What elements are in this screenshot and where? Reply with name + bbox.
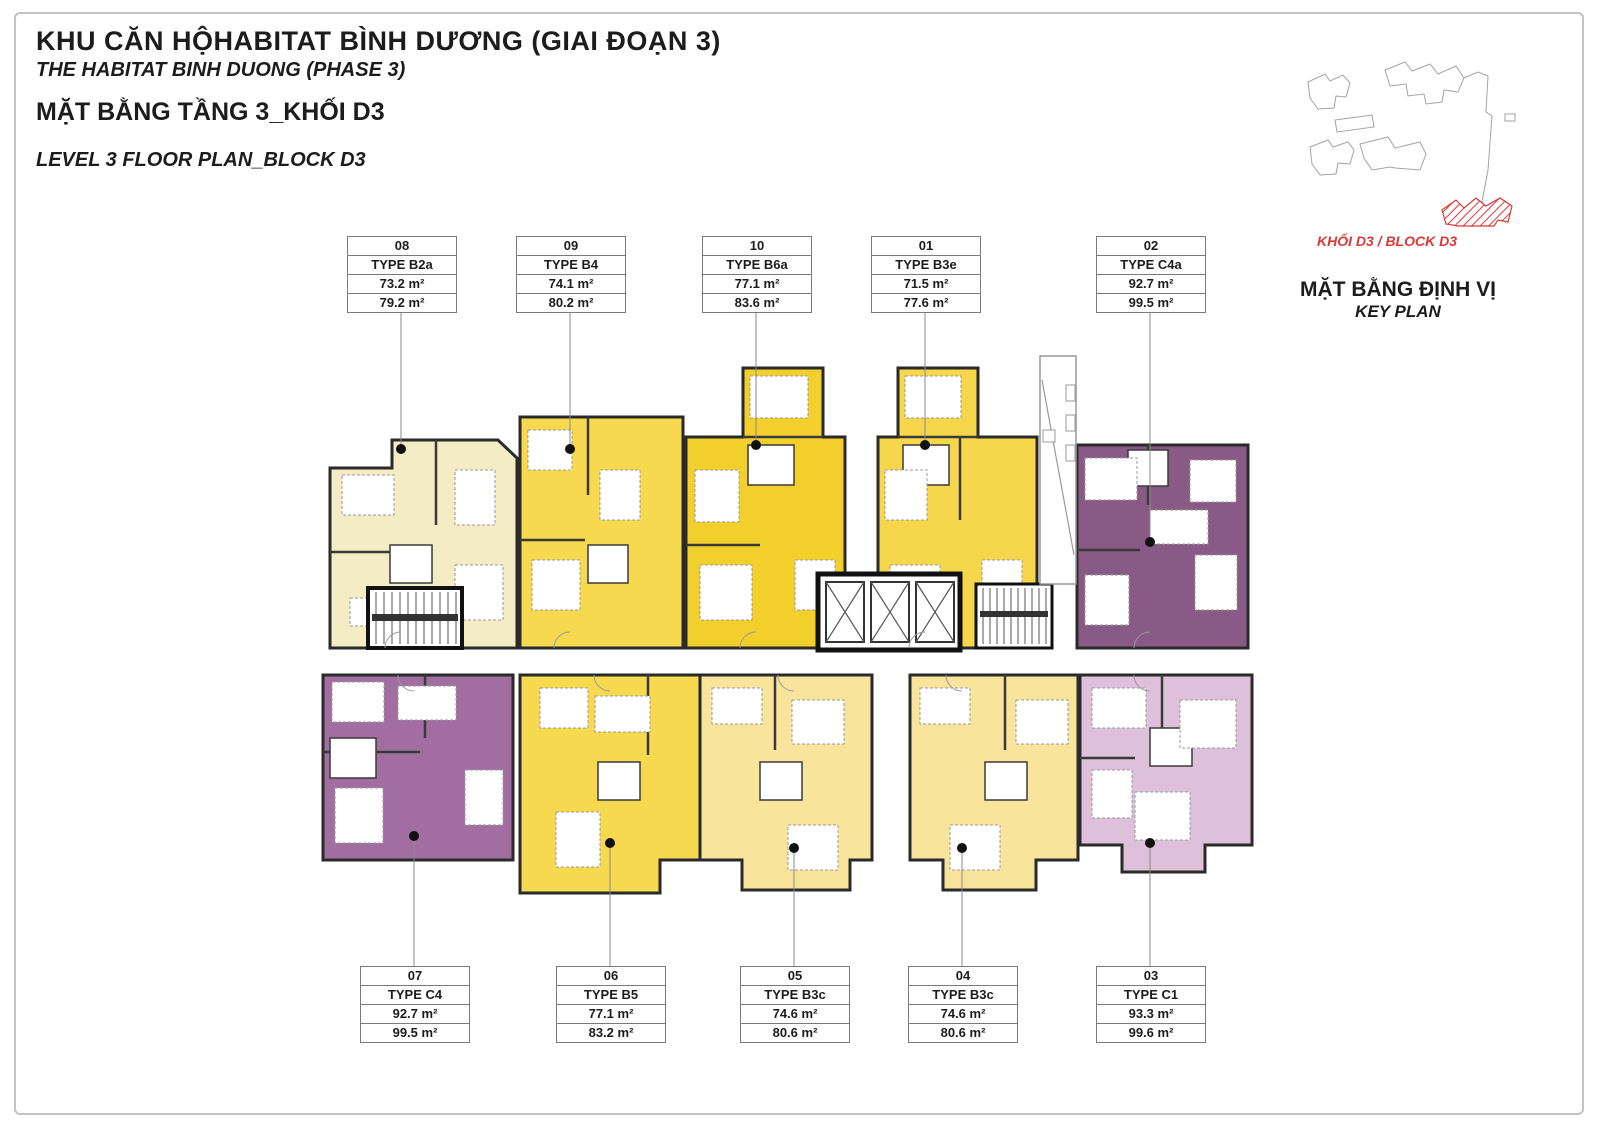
unit-area-1: 77.1 m²: [557, 1005, 665, 1024]
elevator-cell: [916, 582, 954, 642]
unit-area-1: 77.1 m²: [703, 275, 811, 294]
unit-type: TYPE C1: [1097, 986, 1205, 1005]
unit-area-2: 80.6 m²: [909, 1024, 1017, 1042]
unit-type: TYPE B6a: [703, 256, 811, 275]
elevator-cell: [826, 582, 864, 642]
unit-type: TYPE B4: [517, 256, 625, 275]
unit-number: 02: [1097, 237, 1205, 256]
unit-number: 03: [1097, 967, 1205, 986]
unit-area-1: 92.7 m²: [1097, 275, 1205, 294]
unit-number: 10: [703, 237, 811, 256]
unit-area-2: 99.5 m²: [361, 1024, 469, 1042]
unit-area-2: 83.2 m²: [557, 1024, 665, 1042]
unit-label-box-08: 08 TYPE B2a 73.2 m² 79.2 m²: [347, 236, 457, 313]
unit-label-box-04: 04 TYPE B3c 74.6 m² 80.6 m²: [908, 966, 1018, 1043]
building-outline: [1335, 115, 1374, 132]
unit-label-box-07: 07 TYPE C4 92.7 m² 99.5 m²: [360, 966, 470, 1043]
unit-area-2: 83.6 m²: [703, 294, 811, 312]
building-outline: [1505, 114, 1515, 121]
block-d3-label: KHỐI D3 / BLOCK D3: [1282, 233, 1492, 249]
unit-number: 07: [361, 967, 469, 986]
unit-area-2: 80.6 m²: [741, 1024, 849, 1042]
unit-label-box-05: 05 TYPE B3c 74.6 m² 80.6 m²: [740, 966, 850, 1043]
stairs-left: [368, 588, 462, 648]
service-ramp: [1040, 356, 1076, 584]
unit-area-2: 80.2 m²: [517, 294, 625, 312]
unit-type: TYPE B5: [557, 986, 665, 1005]
unit-type: TYPE B3c: [909, 986, 1017, 1005]
unit-area-1: 93.3 m²: [1097, 1005, 1205, 1024]
unit-number: 08: [348, 237, 456, 256]
unit-type: TYPE B3c: [741, 986, 849, 1005]
unit-area-1: 73.2 m²: [348, 275, 456, 294]
building-outline: [1385, 62, 1464, 104]
unit-number: 06: [557, 967, 665, 986]
unit-area-1: 71.5 m²: [872, 275, 980, 294]
unit-type: TYPE B3e: [872, 256, 980, 275]
unit-number: 05: [741, 967, 849, 986]
key-plan-sketch: [1280, 52, 1550, 227]
unit-area-2: 77.6 m²: [872, 294, 980, 312]
project-title-vi: KHU CĂN HỘHABITAT BÌNH DƯƠNG (GIAI ĐOẠN …: [36, 26, 721, 57]
unit-label-box-01: 01 TYPE B3e 71.5 m² 77.6 m²: [871, 236, 981, 313]
building-outline: [1464, 72, 1492, 208]
unit-area-1: 74.1 m²: [517, 275, 625, 294]
plan-title-vi: MẶT BẰNG TẦNG 3_KHỐI D3: [36, 98, 721, 127]
unit-number: 09: [517, 237, 625, 256]
unit-type: TYPE B2a: [348, 256, 456, 275]
elevator-cell: [871, 582, 909, 642]
unit-type: TYPE C4a: [1097, 256, 1205, 275]
elevator-bank: [818, 574, 960, 650]
unit-area-2: 79.2 m²: [348, 294, 456, 312]
unit-area-1: 74.6 m²: [741, 1005, 849, 1024]
unit-label-box-10: 10 TYPE B6a 77.1 m² 83.6 m²: [702, 236, 812, 313]
unit-number: 01: [872, 237, 980, 256]
building-outline: [1360, 137, 1426, 170]
building-outline: [1308, 74, 1350, 109]
unit-label-box-03: 03 TYPE C1 93.3 m² 99.6 m²: [1096, 966, 1206, 1043]
building-outline: [1310, 140, 1354, 175]
unit-area-2: 99.5 m²: [1097, 294, 1205, 312]
floor-plan-drawing: [300, 312, 1270, 966]
stairs-right: [976, 584, 1052, 648]
unit-label-box-09: 09 TYPE B4 74.1 m² 80.2 m²: [516, 236, 626, 313]
title-block: KHU CĂN HỘHABITAT BÌNH DƯƠNG (GIAI ĐOẠN …: [36, 26, 721, 172]
key-plan-title-en: KEY PLAN: [1268, 302, 1528, 322]
unit-label-box-06: 06 TYPE B5 77.1 m² 83.2 m²: [556, 966, 666, 1043]
unit-area-1: 74.6 m²: [909, 1005, 1017, 1024]
floor-plan-page: KHU CĂN HỘHABITAT BÌNH DƯƠNG (GIAI ĐOẠN …: [0, 0, 1600, 1131]
unit-area-2: 99.6 m²: [1097, 1024, 1205, 1042]
key-plan-title-vi: MẶT BẰNG ĐỊNH VỊ: [1268, 278, 1528, 302]
unit-number: 04: [909, 967, 1017, 986]
unit-area-1: 92.7 m²: [361, 1005, 469, 1024]
unit-type: TYPE C4: [361, 986, 469, 1005]
plan-title-en: LEVEL 3 FLOOR PLAN_BLOCK D3: [36, 149, 721, 172]
block-d3-highlight: [1442, 198, 1512, 226]
project-title-en: THE HABITAT BINH DUONG (PHASE 3): [36, 59, 721, 82]
unit-label-box-02: 02 TYPE C4a 92.7 m² 99.5 m²: [1096, 236, 1206, 313]
